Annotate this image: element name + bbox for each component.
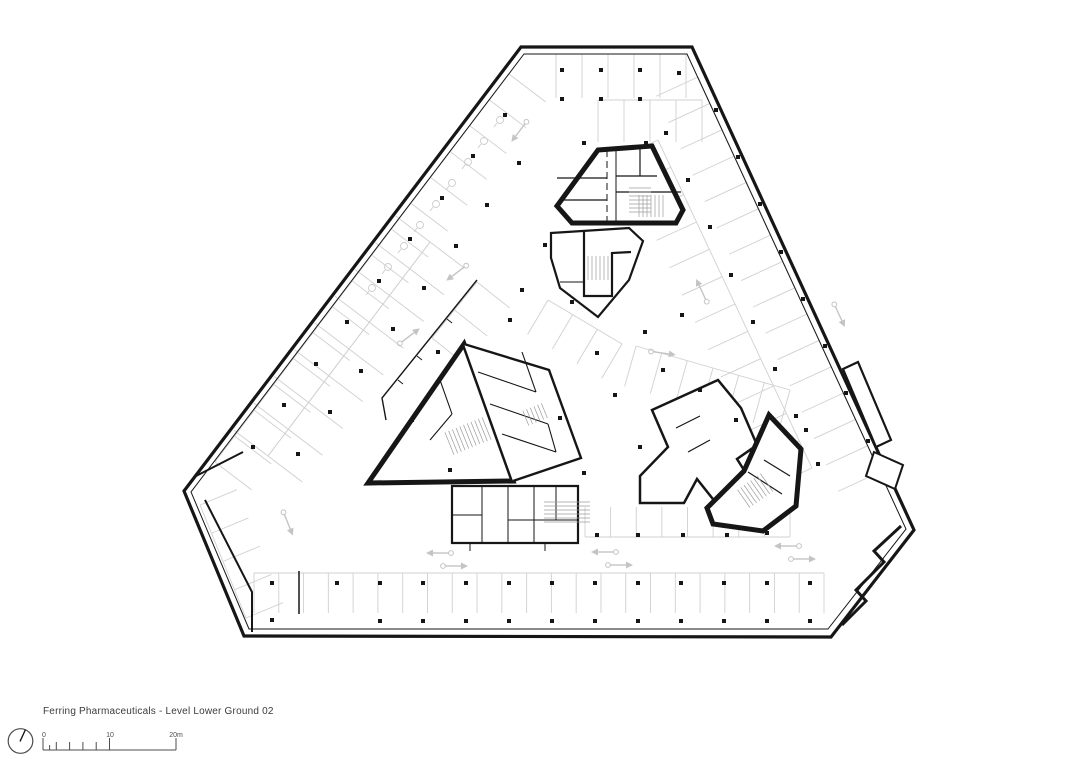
column-marker xyxy=(270,618,274,622)
column-marker xyxy=(765,581,769,585)
column-marker xyxy=(686,178,690,182)
column-marker xyxy=(644,141,648,145)
column-marker xyxy=(550,581,554,585)
column-marker xyxy=(503,113,507,117)
perimeter-outer-wall xyxy=(184,47,914,637)
column-marker xyxy=(722,619,726,623)
column-marker xyxy=(736,155,740,159)
column-marker xyxy=(543,243,547,247)
column-marker xyxy=(599,97,603,101)
column-marker xyxy=(664,131,668,135)
column-marker xyxy=(345,320,349,324)
column-marker xyxy=(296,452,300,456)
column-marker xyxy=(679,581,683,585)
column-marker xyxy=(582,471,586,475)
column-marker xyxy=(804,428,808,432)
column-marker xyxy=(765,619,769,623)
column-marker xyxy=(328,410,332,414)
column-marker xyxy=(638,68,642,72)
column-marker xyxy=(661,368,665,372)
column-marker xyxy=(613,393,617,397)
column-marker xyxy=(560,68,564,72)
scale-label: 20m xyxy=(169,732,183,739)
column-marker xyxy=(765,531,769,535)
column-marker xyxy=(436,350,440,354)
column-marker xyxy=(570,300,574,304)
column-marker xyxy=(378,619,382,623)
scale-bar: 01020m xyxy=(42,732,183,750)
scale-label: 0 xyxy=(42,732,46,739)
column-marker xyxy=(520,288,524,292)
column-marker xyxy=(758,202,762,206)
column-marker xyxy=(680,313,684,317)
column-marker xyxy=(751,320,755,324)
column-marker xyxy=(410,418,414,422)
drawing-sheet: 01020m Ferring Pharmaceuticals - Level L… xyxy=(0,0,1080,764)
column-marker xyxy=(421,581,425,585)
column-marker xyxy=(808,581,812,585)
column-marker xyxy=(582,141,586,145)
column-marker xyxy=(550,619,554,623)
column-marker xyxy=(643,330,647,334)
column-marker xyxy=(508,318,512,322)
column-marker xyxy=(729,273,733,277)
column-marker xyxy=(471,154,475,158)
column-marker xyxy=(734,418,738,422)
drawing-caption: Ferring Pharmaceuticals - Level Lower Gr… xyxy=(43,706,274,718)
column-marker xyxy=(448,468,452,472)
column-marker xyxy=(636,619,640,623)
column-marker xyxy=(816,462,820,466)
column-marker xyxy=(677,71,681,75)
column-marker xyxy=(378,581,382,585)
column-marker xyxy=(314,362,318,366)
column-marker xyxy=(270,581,274,585)
column-marker xyxy=(359,369,363,373)
column-marker xyxy=(335,581,339,585)
column-marker xyxy=(636,533,640,537)
column-marker xyxy=(636,581,640,585)
column-marker xyxy=(722,581,726,585)
north-indicator xyxy=(8,729,33,754)
column-marker xyxy=(681,533,685,537)
building-perimeter xyxy=(184,47,914,637)
column-marker xyxy=(421,619,425,623)
scale-label: 10 xyxy=(106,732,114,739)
column-marker xyxy=(507,581,511,585)
column-marker xyxy=(698,388,702,392)
column-marker xyxy=(391,327,395,331)
column-marker xyxy=(801,297,805,301)
column-marker xyxy=(517,161,521,165)
column-marker xyxy=(558,416,562,420)
column-marker xyxy=(454,244,458,248)
column-marker xyxy=(599,68,603,72)
floor-plan-drawing: 01020m xyxy=(0,0,1080,764)
north-needle-icon xyxy=(20,730,26,742)
column-marker xyxy=(464,581,468,585)
column-marker xyxy=(866,439,870,443)
column-marker xyxy=(823,344,827,348)
column-marker xyxy=(773,367,777,371)
column-marker xyxy=(638,97,642,101)
column-marker xyxy=(595,533,599,537)
column-marker xyxy=(714,108,718,112)
column-marker xyxy=(251,445,255,449)
column-marker xyxy=(408,237,412,241)
column-marker xyxy=(794,414,798,418)
drawing-title: Ferring Pharmaceuticals - Level Lower Gr… xyxy=(43,706,274,717)
column-marker xyxy=(844,391,848,395)
column-marker xyxy=(593,619,597,623)
flow-arrow-icon xyxy=(830,301,848,329)
column-marker xyxy=(282,403,286,407)
column-marker xyxy=(708,225,712,229)
column-marker xyxy=(377,279,381,283)
column-marker xyxy=(440,196,444,200)
column-marker xyxy=(595,351,599,355)
column-marker xyxy=(638,445,642,449)
column-marker xyxy=(808,619,812,623)
column-marker xyxy=(422,286,426,290)
column-marker xyxy=(679,619,683,623)
column-marker xyxy=(593,581,597,585)
column-marker xyxy=(507,619,511,623)
column-marker xyxy=(560,97,564,101)
column-marker xyxy=(779,250,783,254)
column-marker xyxy=(485,203,489,207)
column-marker xyxy=(725,533,729,537)
column-marker xyxy=(464,619,468,623)
